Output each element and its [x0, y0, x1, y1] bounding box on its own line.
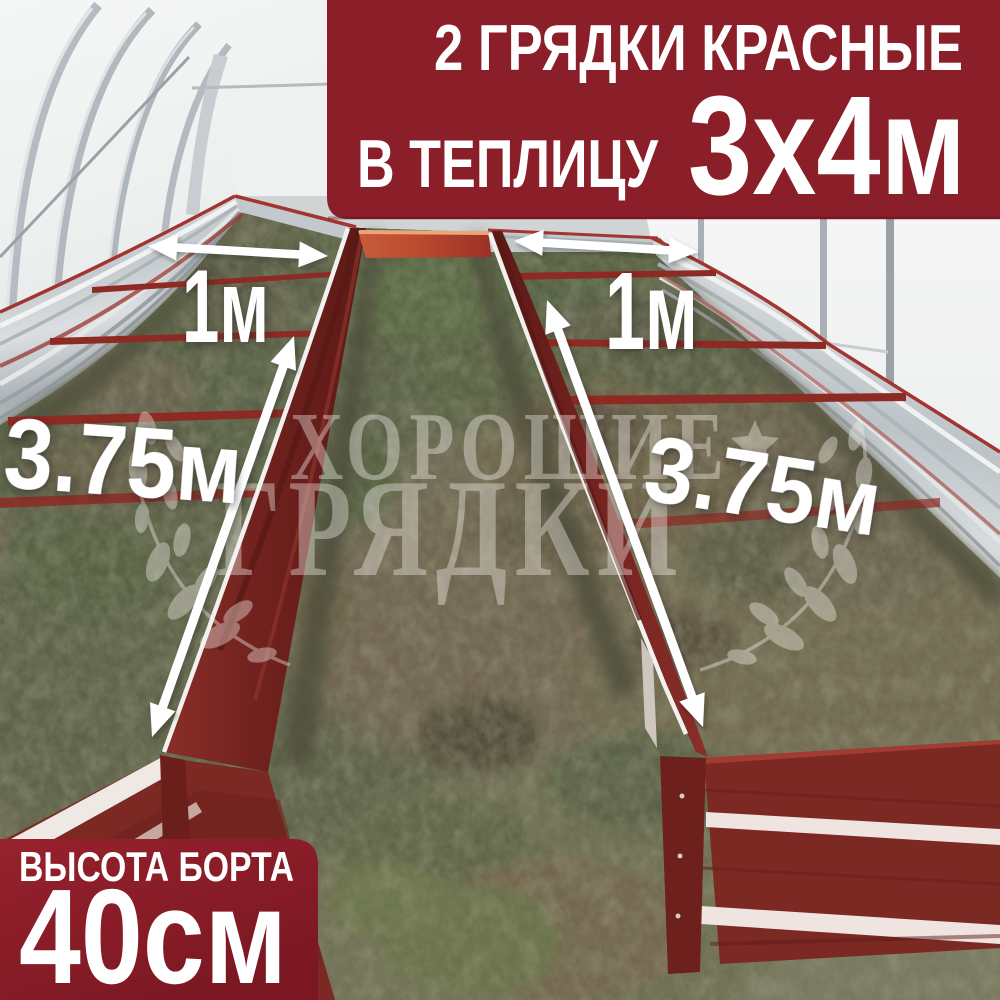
svg-text:1м: 1м — [182, 249, 269, 365]
svg-text:В ТЕПЛИЦУ: В ТЕПЛИЦУ — [357, 126, 659, 202]
svg-text:1м: 1м — [605, 250, 698, 373]
svg-text:3х4м: 3х4м — [688, 66, 966, 224]
svg-text:40см: 40см — [19, 861, 287, 1000]
svg-text:3.75м: 3.75м — [0, 397, 245, 525]
